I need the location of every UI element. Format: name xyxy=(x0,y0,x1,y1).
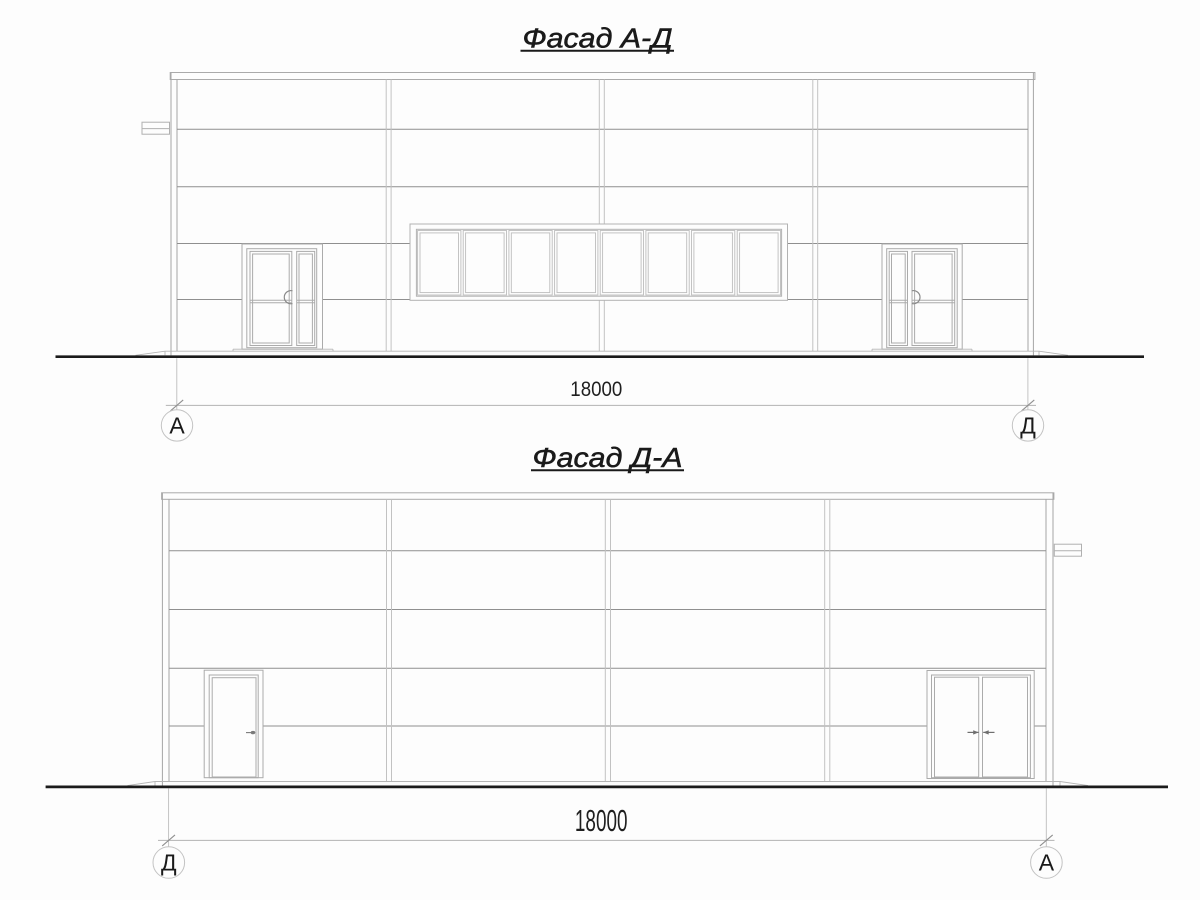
svg-text:Фасад А-Д: Фасад А-Д xyxy=(523,23,673,54)
svg-text:Д: Д xyxy=(1020,412,1036,438)
svg-text:Фасад Д-А: Фасад Д-А xyxy=(533,442,683,473)
svg-text:18000: 18000 xyxy=(575,804,628,838)
svg-text:А: А xyxy=(1039,850,1055,876)
svg-text:А: А xyxy=(169,412,185,438)
svg-text:18000: 18000 xyxy=(570,378,622,401)
svg-text:Д: Д xyxy=(161,850,177,876)
